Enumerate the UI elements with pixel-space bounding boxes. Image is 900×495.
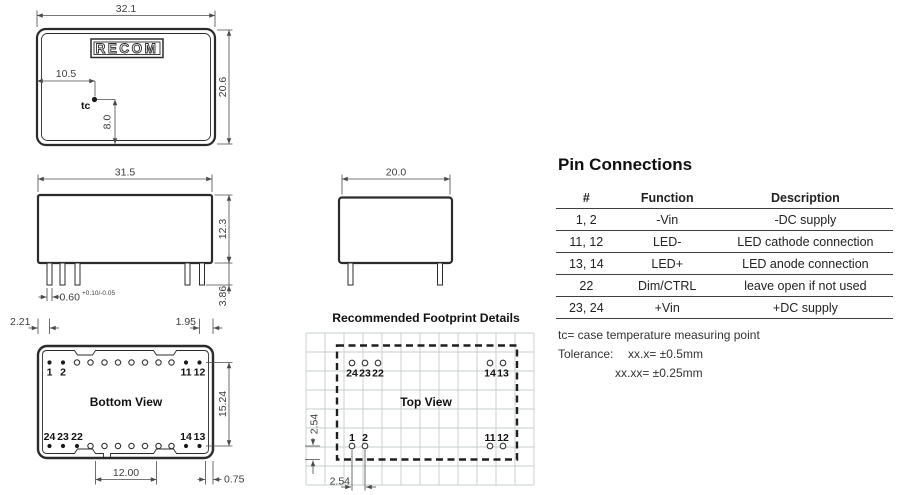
top-view-label: Top View xyxy=(400,395,452,409)
pad-hole xyxy=(362,360,368,366)
pin-description: -DC supply xyxy=(718,209,893,231)
pin-pad xyxy=(169,360,174,365)
recom-logo: RECOM xyxy=(91,39,163,58)
pin xyxy=(47,263,52,285)
pin-pad xyxy=(115,360,120,365)
pin-number: 24 xyxy=(44,431,56,443)
dim-row-spacing: 15.24 xyxy=(217,391,229,417)
pcb-grid xyxy=(306,333,534,485)
dim-tc-offset-y: 8.0 xyxy=(102,115,114,130)
pin-pad xyxy=(47,444,51,448)
top-view-drawing: RECOM 32.1 20.6 10.5 tc 8.0 xyxy=(37,3,233,145)
pin-number: 13 xyxy=(497,368,509,380)
dim-pin-width-tolerance: +0.10/-0.05 xyxy=(82,290,115,297)
pin-numbers: 1, 2 xyxy=(556,209,617,231)
pin-pad xyxy=(61,444,65,448)
dim-extension-lines xyxy=(305,446,320,460)
pin-connections-panel: Pin Connections # Function Description 1… xyxy=(556,155,900,384)
note-tolerance-2: xx.xx= ±0.25mm xyxy=(558,364,900,383)
dim-extension-lines xyxy=(206,263,233,285)
pin-pad xyxy=(102,443,107,448)
header-number: # xyxy=(556,187,617,209)
pin-pad xyxy=(169,443,174,448)
dim-pin-edge-right: 1.95 xyxy=(176,316,197,328)
table-row: 13, 14 LED+ LED anode connection xyxy=(556,253,893,275)
dim-extension-lines xyxy=(38,319,50,335)
dim-body-depth: 20.0 xyxy=(386,167,407,179)
dim-tc-offset-x: 10.5 xyxy=(56,68,77,80)
dim-pin-width: 0.60 xyxy=(60,292,81,304)
pin-pad xyxy=(129,443,134,448)
pin-number: 1 xyxy=(47,367,53,379)
pin-numbers: 22 xyxy=(556,275,617,297)
pin-pad xyxy=(75,444,79,448)
pin-number: 12 xyxy=(497,432,509,444)
pad-hole xyxy=(349,443,355,449)
pad-hole xyxy=(487,360,493,366)
dim-extension-lines xyxy=(206,461,214,485)
pin-numbers: 13, 14 xyxy=(556,253,617,275)
pin-pad xyxy=(129,360,134,365)
footprint-drawing: 24 23 22 14 13 1 2 11 12 Top View 2.54 2… xyxy=(305,333,534,491)
dim-body-width: 31.5 xyxy=(115,167,136,179)
pad-hole xyxy=(349,360,355,366)
pin-pad xyxy=(102,360,107,365)
pin-number: 14 xyxy=(180,431,192,443)
pin-numbers: 23, 24 xyxy=(556,297,617,319)
pin-number: 13 xyxy=(194,431,206,443)
tolerance-value-2: xx.xx= ±0.25mm xyxy=(615,366,703,380)
footprint-section-title: Recommended Footprint Details xyxy=(332,311,520,325)
pin-pad xyxy=(156,443,161,448)
pad-hole xyxy=(487,443,493,449)
mechanical-drawings: RECOM 32.1 20.6 10.5 tc 8.0 31.5 12.3 0.… xyxy=(0,0,552,495)
pin xyxy=(185,263,190,285)
pin-pad xyxy=(88,443,93,448)
pin xyxy=(60,263,65,285)
pad-hole xyxy=(362,443,368,449)
header-function: Function xyxy=(617,187,718,209)
table-row: 1, 2 -Vin -DC supply xyxy=(556,209,893,231)
end-view-drawing: 20.0 xyxy=(339,167,452,286)
tc-label: tc xyxy=(81,100,90,112)
pin-number: 22 xyxy=(71,431,83,443)
dim-case-height: 20.6 xyxy=(217,77,229,98)
pin xyxy=(438,263,443,285)
notes-block: tc= case temperature measuring point Tol… xyxy=(558,326,900,384)
pin-function: +Vin xyxy=(617,297,718,319)
header-description: Description xyxy=(718,187,893,209)
tolerance-label: Tolerance: xyxy=(558,345,628,364)
pin-connections-title: Pin Connections xyxy=(558,155,900,175)
pin-function: Dim/CTRL xyxy=(617,275,718,297)
pin-connections-table: # Function Description 1, 2 -Vin -DC sup… xyxy=(556,187,893,319)
pad-hole xyxy=(500,360,506,366)
dim-extension-lines xyxy=(47,288,52,301)
pin-pad xyxy=(74,360,79,365)
table-header-row: # Function Description xyxy=(556,187,893,209)
dim-pitch-horizontal: 2.54 xyxy=(330,476,351,488)
note-tolerance-1: Tolerance:xx.x= ±0.5mm xyxy=(558,345,900,364)
pad-hole xyxy=(375,360,381,366)
pin-function: LED+ xyxy=(617,253,718,275)
pad-hole xyxy=(500,443,506,449)
pin xyxy=(200,263,205,285)
dim-pitch-vertical: 2.54 xyxy=(309,414,321,435)
pin-pad xyxy=(156,360,161,365)
pin-description: +DC supply xyxy=(718,297,893,319)
dim-extension-lines xyxy=(200,319,214,335)
tolerance-value-1: xx.x= ±0.5mm xyxy=(628,347,703,361)
dim-notch-spacing: 12.00 xyxy=(113,467,139,479)
pin-pad xyxy=(61,360,65,364)
pin-number: 2 xyxy=(60,367,66,379)
pin-pad xyxy=(142,443,147,448)
dim-case-width: 32.1 xyxy=(116,3,137,15)
pin-number: 12 xyxy=(194,367,206,379)
pin-pad xyxy=(47,360,51,364)
pin-description: LED cathode connection xyxy=(718,231,893,253)
pin-pad xyxy=(184,360,188,364)
bottom-view-label: Bottom View xyxy=(90,395,163,409)
note-tc: tc= case temperature measuring point xyxy=(558,326,900,345)
dim-edge-offset: 0.75 xyxy=(224,474,245,486)
pin-function: -Vin xyxy=(617,209,718,231)
front-view-drawing: 31.5 12.3 0.60 +0.10/-0.05 3.86 xyxy=(38,167,233,307)
tc-point xyxy=(92,97,97,102)
pin-number: 24 xyxy=(346,368,358,380)
pin-pad xyxy=(115,443,120,448)
pin-number: 2 xyxy=(362,432,368,444)
pin-pad xyxy=(88,360,93,365)
pin-number: 22 xyxy=(372,368,384,380)
pin-pad xyxy=(197,360,201,364)
pin-number: 11 xyxy=(484,432,495,444)
table-row: 11, 12 LED- LED cathode connection xyxy=(556,231,893,253)
table-row: 22 Dim/CTRL leave open if not used xyxy=(556,275,893,297)
logo-text: RECOM xyxy=(96,41,159,56)
case-outline xyxy=(38,195,212,263)
case-outline xyxy=(339,198,452,264)
pin-description: LED anode connection xyxy=(718,253,893,275)
datasheet-page: RECOM 32.1 20.6 10.5 tc 8.0 31.5 12.3 0.… xyxy=(0,0,900,495)
pin-numbers: 11, 12 xyxy=(556,231,617,253)
pin-number: 1 xyxy=(349,432,355,444)
pin xyxy=(348,263,353,285)
dim-body-height: 12.3 xyxy=(217,219,229,240)
pin-number: 23 xyxy=(359,368,371,380)
pin-number: 11 xyxy=(180,367,191,379)
bottom-view-drawing: 1 2 11 12 24 23 22 14 13 Bottom View 15.… xyxy=(10,316,245,486)
pin-function: LED- xyxy=(617,231,718,253)
pin-number: 23 xyxy=(57,431,69,443)
pin-pad xyxy=(184,444,188,448)
pin-description: leave open if not used xyxy=(718,275,893,297)
pin xyxy=(75,263,80,285)
pin-number: 14 xyxy=(484,368,496,380)
table-row: 23, 24 +Vin +DC supply xyxy=(556,297,893,319)
pin-pad xyxy=(197,444,201,448)
dim-pin-edge-left: 2.21 xyxy=(10,316,31,328)
dim-pin-length: 3.86 xyxy=(217,286,229,307)
pin-pad xyxy=(142,360,147,365)
